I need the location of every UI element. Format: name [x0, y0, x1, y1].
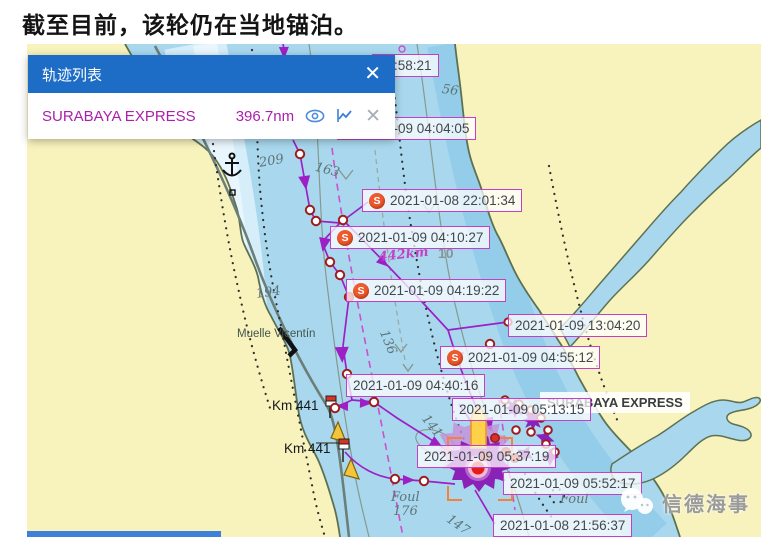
track-point-time: 2021-01-08 21:56:37: [500, 518, 625, 533]
panel-title: 轨迹列表: [42, 64, 102, 85]
ais-s-marker-icon: S: [353, 283, 369, 299]
track-point-label[interactable]: S2021-01-09 04:55:12: [440, 346, 600, 369]
track-point-label[interactable]: S2021-01-08 22:01:34: [362, 189, 522, 212]
panel-header: 轨迹列表 ✕: [28, 55, 395, 93]
eye-icon[interactable]: [305, 109, 325, 123]
chart-annotation: Km 441: [272, 398, 319, 413]
chart-annotation: 56: [441, 82, 459, 99]
track-point-label[interactable]: S2021-01-09 04:10:27: [330, 226, 490, 249]
remove-track-icon[interactable]: ✕: [365, 107, 381, 126]
chart-annotation: Muelle Vicentín: [237, 328, 315, 340]
ais-s-marker-icon: S: [447, 350, 463, 366]
chart-annotation: Foul: [391, 490, 420, 505]
track-point-label[interactable]: 2021-01-09 05:37:19: [417, 445, 556, 468]
chart-annotation: Km 441: [284, 441, 331, 456]
watermark-text: 信德海事: [662, 488, 750, 517]
track-point-time: 2021-01-09 05:37:19: [424, 449, 549, 464]
wechat-icon: [618, 486, 656, 518]
track-point-label[interactable]: 2021-01-09 05:13:15: [452, 398, 591, 421]
vessel-track-distance: 396.7nm: [236, 108, 294, 125]
screenshot-root: 截至目前，该轮仍在当地锚泊。: [0, 0, 761, 545]
vessel-name[interactable]: SURABAYA EXPRESS: [42, 108, 196, 125]
watermark: 信德海事: [618, 486, 750, 518]
page-title: 截至目前，该轮仍在当地锚泊。: [22, 6, 358, 40]
ais-s-marker-icon: S: [369, 193, 385, 209]
bottom-partial-bar: [27, 531, 221, 537]
track-point-time: 2021-01-09 04:40:16: [353, 378, 478, 393]
track-point-label[interactable]: S2021-01-09 04:19:22: [346, 279, 506, 302]
track-list-row[interactable]: SURABAYA EXPRESS 396.7nm ✕: [28, 93, 395, 139]
track-list-panel: 轨迹列表 ✕ SURABAYA EXPRESS 396.7nm: [28, 55, 395, 139]
track-point-time: 2021-01-08 22:01:34: [390, 193, 515, 208]
track-point-label[interactable]: 2021-01-09 04:40:16: [346, 374, 485, 397]
track-point-label[interactable]: 2021-01-09 13:04:20: [508, 314, 647, 337]
track-point-time: 2021-01-09 04:55:12: [468, 350, 593, 365]
track-point-time: 2021-01-09 04:10:27: [358, 230, 483, 245]
track-point-time: 2021-01-09 13:04:20: [515, 318, 640, 333]
track-point-time: 2021-01-09 05:52:17: [510, 476, 635, 491]
ais-s-marker-icon: S: [337, 230, 353, 246]
trend-chart-icon[interactable]: [336, 108, 354, 124]
panel-close-icon[interactable]: ✕: [364, 64, 381, 84]
chart-annotation: 176: [393, 504, 418, 519]
track-point-label[interactable]: 2021-01-08 21:56:37: [493, 514, 632, 537]
track-point-time: 2021-01-09 04:19:22: [374, 283, 499, 298]
km441-beacon: [316, 396, 346, 443]
track-point-time: 2021-01-09 05:13:15: [459, 402, 584, 417]
